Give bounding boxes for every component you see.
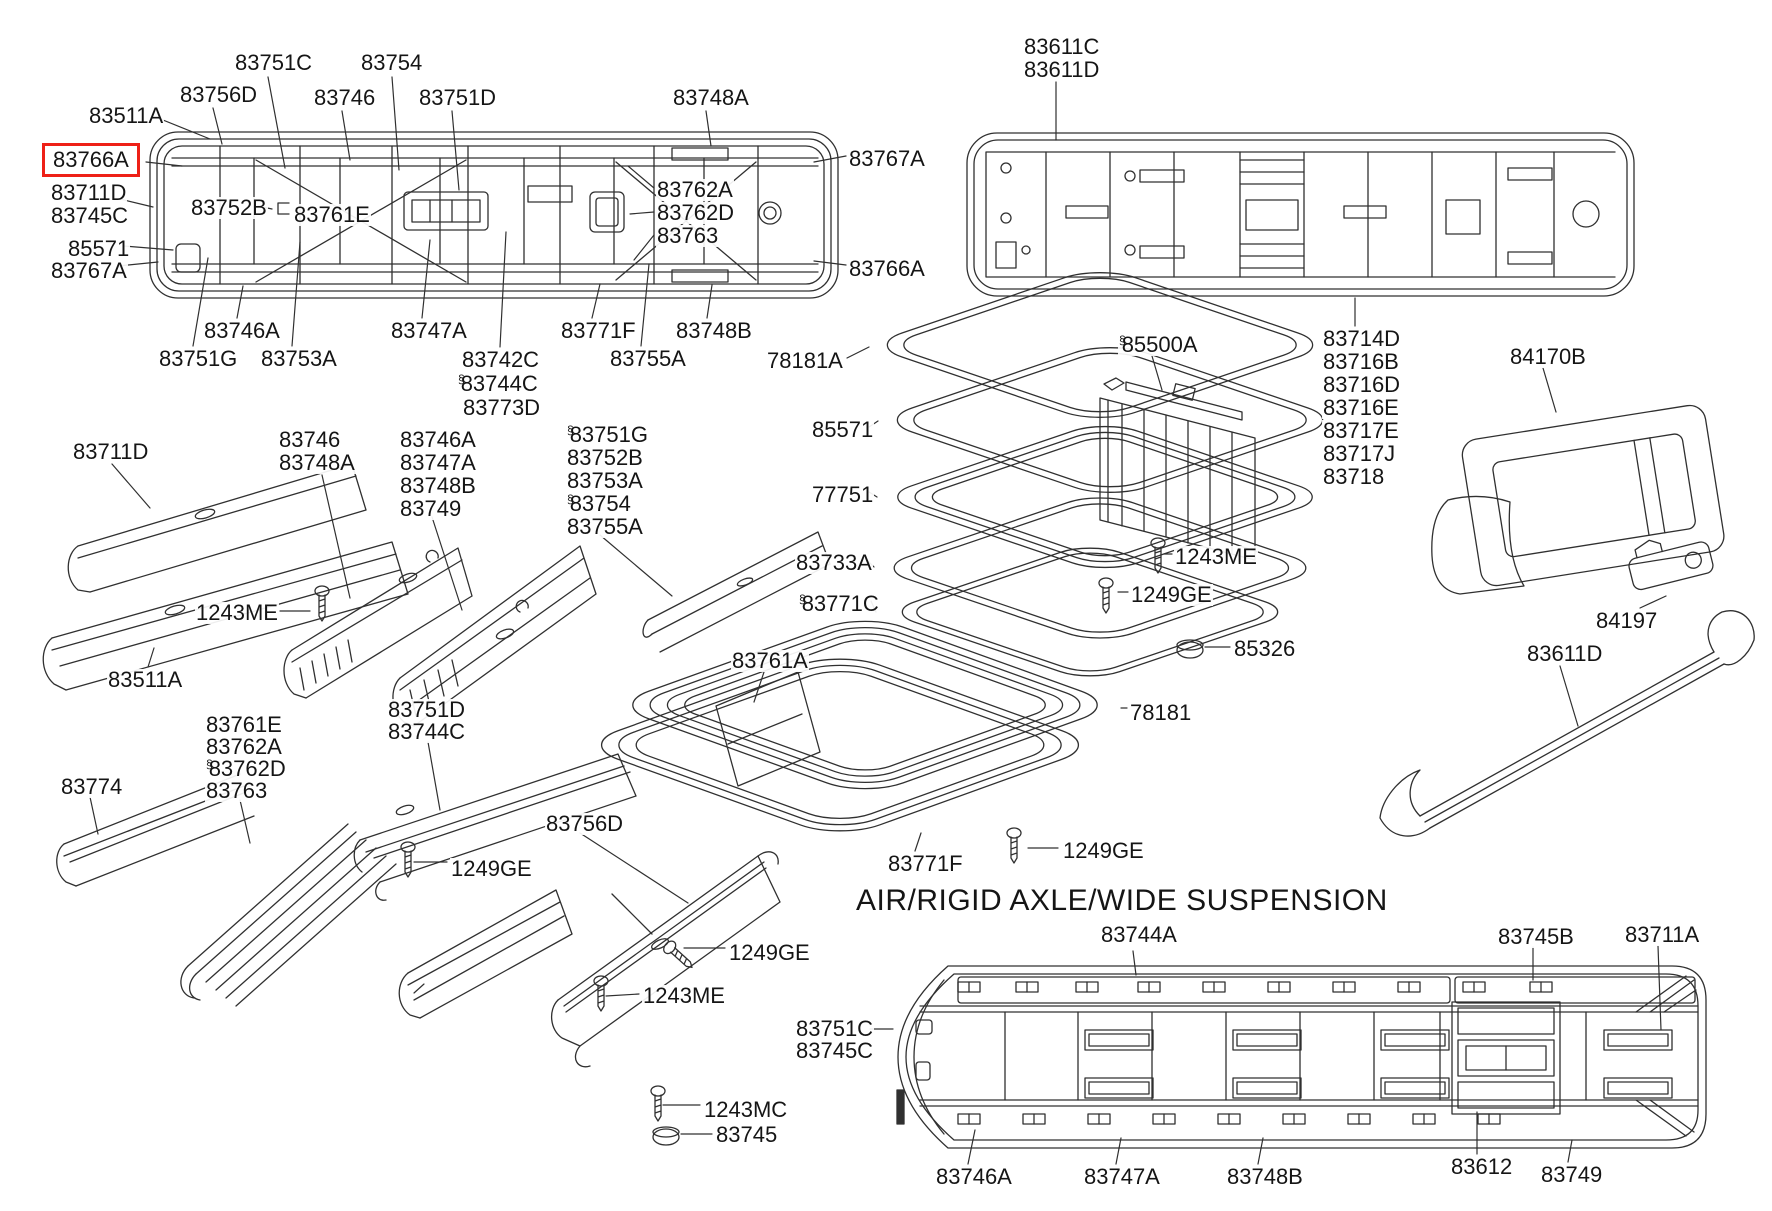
part-label-83752b-62: 83752B: [566, 447, 644, 469]
part-label-83748b-59: 83748B: [399, 475, 477, 497]
part-label-83749-60: 83749: [399, 498, 462, 520]
part-label-83746-55: 83746: [278, 429, 341, 451]
part-label-83751d-4: 83751D: [418, 87, 497, 109]
part-label-83749-90: 83749: [1540, 1164, 1603, 1186]
part-label-83748b-22: 83748B: [675, 320, 753, 342]
part-label-83744c-26: §83744C: [457, 373, 539, 395]
part-label-83733a-48: 83733A: [795, 552, 873, 574]
part-label-1243me-66: 1243ME: [195, 602, 279, 624]
part-label-1243me-78: 1243ME: [642, 985, 726, 1007]
part-label-83766a-7: 83766A: [42, 143, 140, 177]
part-label-83746a-57: 83746A: [399, 429, 477, 451]
part-label-83511a-6: 83511A: [88, 105, 164, 127]
part-label-83748b-88: 83748B: [1226, 1166, 1304, 1188]
part-label-83755a-28: 83755A: [609, 348, 687, 370]
part-label-83771f-21: 83771F: [560, 320, 637, 342]
part-label-1249ge-75: 1249GE: [450, 858, 533, 880]
part-label-83753a-63: 83753A: [566, 470, 644, 492]
part-label-83711d-9: 83711D: [50, 182, 127, 204]
part-label-83717e-36: 83717E: [1322, 420, 1400, 442]
part-label-83746a-19: 83746A: [203, 320, 281, 342]
footnote-mark-icon: §: [567, 492, 573, 506]
part-label-83717j-37: 83717J: [1322, 443, 1396, 465]
part-label-85326-43: 85326: [1233, 638, 1296, 660]
footnote-mark-icon: §: [799, 592, 805, 606]
part-label-1249ge-53: 1249GE: [1062, 840, 1145, 862]
part-label-83755a-65: 83755A: [566, 516, 644, 538]
part-label-83745c-10: 83745C: [50, 205, 129, 227]
section-heading: AIR/RIGID AXLE/WIDE SUSPENSION: [856, 886, 1388, 916]
diagram-page: AIR/RIGID AXLE/WIDE SUSPENSION 83751C837…: [0, 0, 1772, 1211]
part-label-83752b-11: 83752B: [190, 197, 268, 219]
part-label-83716e-35: 83716E: [1322, 397, 1400, 419]
part-label-83753a-24: 83753A: [260, 348, 338, 370]
part-label-83747a-20: 83747A: [390, 320, 468, 342]
part-label-83745b-82: 83745B: [1497, 926, 1575, 948]
part-label-83754-64: §83754: [566, 493, 632, 515]
part-label-83771f-52: 83771F: [887, 853, 964, 875]
part-label-83747a-58: 83747A: [399, 452, 477, 474]
part-label-83744c-73: 83744C: [387, 721, 466, 743]
part-label-77751-47: 77751: [811, 484, 874, 506]
part-label-83771c-49: §83771C: [798, 593, 880, 615]
part-label-83751c-84: 83751C: [795, 1018, 874, 1040]
part-label-83745c-85: 83745C: [795, 1040, 874, 1062]
part-label-83761e-68: 83761E: [205, 714, 283, 736]
footnote-mark-icon: §: [206, 757, 212, 771]
part-label-83751c-0: 83751C: [234, 52, 313, 74]
part-label-83762a-69: 83762A: [205, 736, 283, 758]
part-label-83773d-27: 83773D: [462, 397, 541, 419]
part-label-83762d-14: 83762D: [656, 202, 735, 224]
part-label-1243mc-79: 1243MC: [703, 1099, 788, 1121]
part-label-83767a-17: 83767A: [50, 260, 128, 282]
part-label-85500a-39: §85500A: [1118, 334, 1199, 356]
part-label-83746-3: 83746: [313, 87, 376, 109]
part-label-83718-38: 83718: [1322, 466, 1385, 488]
part-label-83763-71: 83763: [205, 780, 268, 802]
part-label-83744a-81: 83744A: [1100, 924, 1178, 946]
footnote-mark-icon: §: [458, 372, 464, 386]
part-label-83711d-54: 83711D: [72, 441, 149, 463]
part-label-84197-44: 84197: [1595, 610, 1658, 632]
part-label-83711a-83: 83711A: [1624, 924, 1700, 946]
part-label-83611d-45: 83611D: [1526, 643, 1603, 665]
part-label-83748a-5: 83748A: [672, 87, 750, 109]
footnote-mark-icon: §: [567, 423, 573, 437]
part-label-83766a-18: 83766A: [848, 258, 926, 280]
part-label-83716d-34: 83716D: [1322, 374, 1401, 396]
part-label-83746a-86: 83746A: [935, 1166, 1013, 1188]
part-label-83511a-67: 83511A: [107, 669, 183, 691]
part-label-83612-89: 83612: [1450, 1156, 1513, 1178]
part-label-83751g-23: 83751G: [158, 348, 238, 370]
part-label-78181a-29: 78181A: [766, 350, 844, 372]
part-label-84170b-40: 84170B: [1509, 346, 1587, 368]
part-label-83754-1: 83754: [360, 52, 423, 74]
part-label-83742c-25: 83742C: [461, 349, 540, 371]
part-label-83756d-2: 83756D: [179, 84, 258, 106]
part-label-83763-15: 83763: [656, 225, 719, 247]
part-label-83611c-30: 83611C: [1023, 36, 1100, 58]
part-label-85571-16: 85571: [67, 238, 130, 260]
part-labels-layer: AIR/RIGID AXLE/WIDE SUSPENSION 83751C837…: [0, 0, 1772, 1211]
part-label-78181-51: 78181: [1129, 702, 1192, 724]
part-label-83716b-33: 83716B: [1322, 351, 1400, 373]
part-label-83761a-50: 83761A: [731, 650, 809, 672]
part-label-83751g-61: §83751G: [566, 424, 649, 446]
part-label-83747a-87: 83747A: [1083, 1166, 1161, 1188]
part-label-85571-46: 85571: [811, 419, 874, 441]
part-label-83762d-70: §83762D: [205, 758, 287, 780]
part-label-1243me-41: 1243ME: [1174, 546, 1258, 568]
part-label-83748a-56: 83748A: [278, 452, 356, 474]
part-label-1249ge-77: 1249GE: [728, 942, 811, 964]
part-label-83774-74: 83774: [60, 776, 123, 798]
part-label-83745-80: 83745: [715, 1124, 778, 1146]
part-label-83761e-12: 83761E: [293, 204, 371, 226]
part-label-83714d-32: 83714D: [1322, 328, 1401, 350]
part-label-1249ge-42: 1249GE: [1130, 584, 1213, 606]
part-label-83756d-76: 83756D: [545, 813, 624, 835]
part-label-83767a-8: 83767A: [848, 148, 926, 170]
footnote-mark-icon: §: [1119, 333, 1125, 347]
part-label-83751d-72: 83751D: [387, 699, 466, 721]
part-label-83762a-13: 83762A: [656, 179, 734, 201]
part-label-83611d-31: 83611D: [1023, 59, 1100, 81]
